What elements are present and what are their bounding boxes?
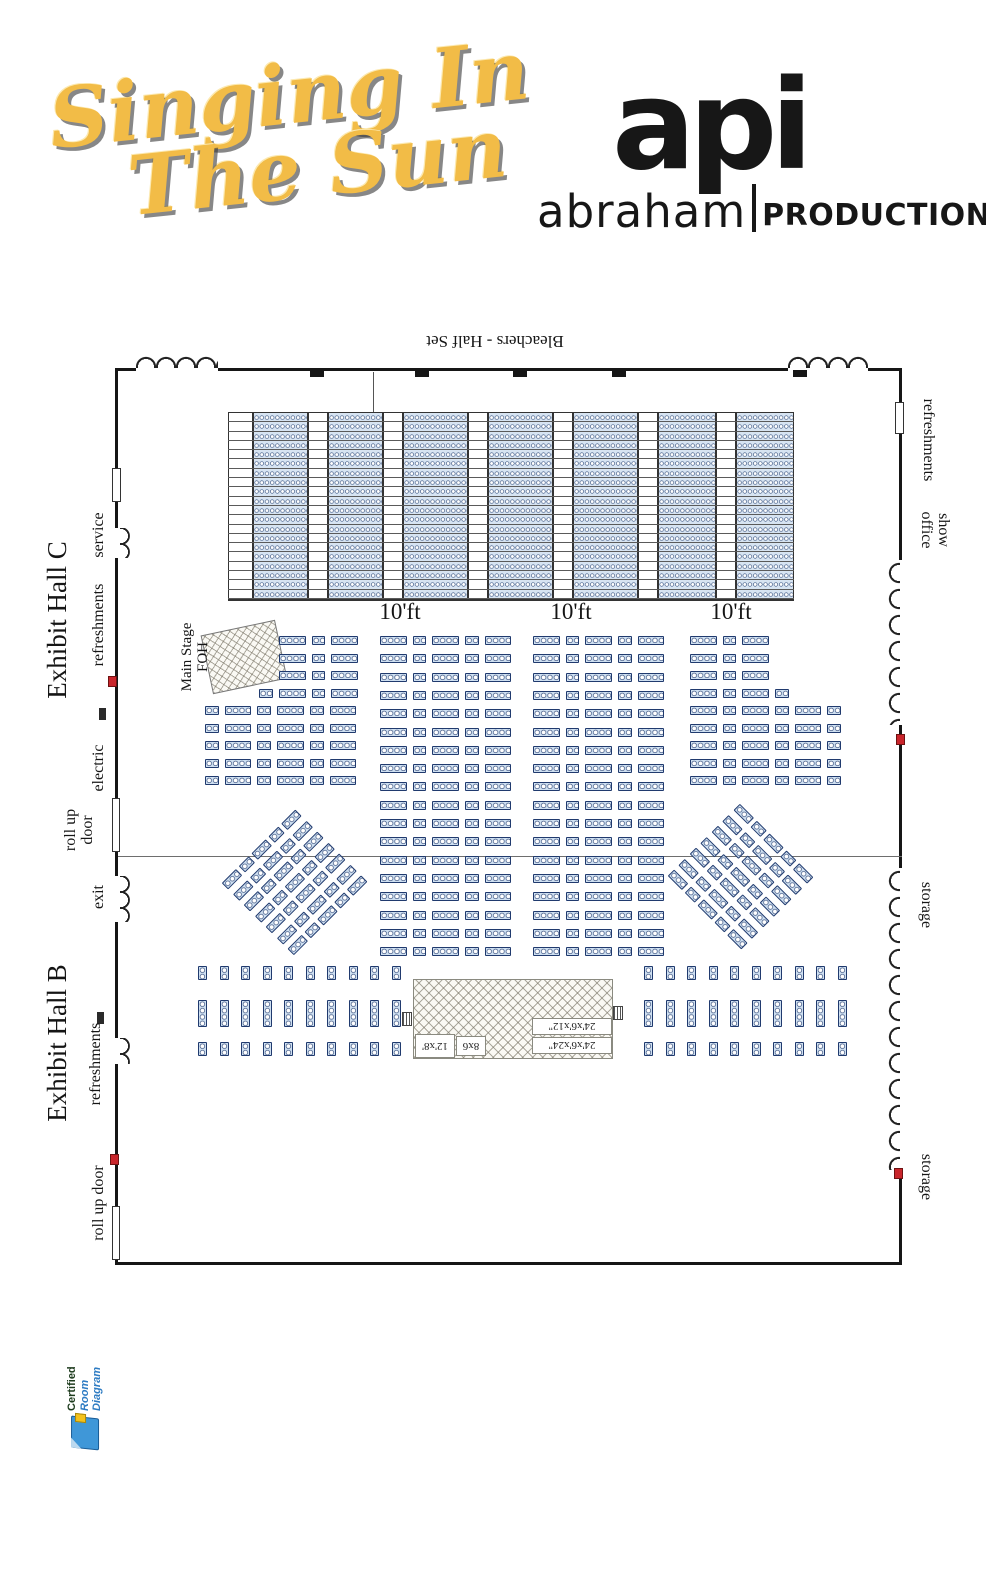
seat-cluster (330, 741, 357, 750)
bleacher-aisle (716, 459, 736, 467)
bleacher-aisle (468, 571, 488, 579)
bleacher-seats (328, 580, 383, 588)
seat-cluster (618, 782, 632, 791)
seat-cluster (465, 819, 479, 828)
seat-cluster (687, 1000, 696, 1027)
seat-cluster (709, 1042, 718, 1056)
seat-cluster (747, 883, 763, 899)
seat-cluster (795, 741, 822, 750)
seat-cluster (795, 724, 822, 733)
seat-cluster (618, 819, 632, 828)
bleacher-seats (403, 580, 468, 588)
bleacher-seats (658, 441, 716, 449)
seat-cluster (413, 929, 427, 938)
bleacher-aisle (553, 469, 573, 477)
bleacher-seats (488, 469, 553, 477)
seat-cluster (317, 905, 338, 926)
bleacher-stairs (228, 590, 253, 598)
bleacher-aisle (716, 506, 736, 514)
seat-cluster (533, 874, 560, 883)
bleacher-aisle (308, 432, 328, 440)
aisle-width-label: 10'ft (541, 599, 601, 625)
seat-cluster (775, 706, 789, 715)
seat-cluster (533, 892, 560, 901)
bleacher-seats (658, 534, 716, 542)
seat-cluster (284, 1042, 293, 1056)
bleacher-seats (328, 534, 383, 542)
seat-cluster (741, 855, 762, 876)
bleacher-seats (573, 506, 638, 514)
seat-cluster (465, 709, 479, 718)
bleacher-seats (658, 580, 716, 588)
bleacher-seats (403, 590, 468, 598)
bleacher-seats (328, 487, 383, 495)
bleacher-aisle (638, 459, 658, 467)
seat-cluster (241, 1042, 250, 1056)
seat-cluster (323, 881, 339, 897)
seat-cluster (432, 691, 459, 700)
seat-cluster (330, 706, 357, 715)
event-room-diagram-page: Singing In The Sun api abraham PRODUCTIO… (0, 0, 986, 1572)
seat-cluster (827, 776, 841, 785)
bleacher-seats (658, 487, 716, 495)
bleacher-aisle (553, 506, 573, 514)
refreshments-label: refreshments (919, 388, 937, 492)
seat-cluster (225, 724, 252, 733)
bleacher-seats (658, 506, 716, 514)
seat-cluster (392, 1042, 401, 1056)
seat-cluster (690, 759, 717, 768)
bleacher-aisle (383, 506, 403, 514)
seat-cluster (618, 911, 632, 920)
seat-cluster (638, 892, 665, 901)
seat-cluster (775, 776, 789, 785)
seat-cluster (380, 746, 407, 755)
bleacher-aisle (468, 506, 488, 514)
seat-cluster (413, 874, 427, 883)
seat-cluster (566, 819, 580, 828)
seat-cluster (225, 759, 252, 768)
bleacher-row (228, 450, 794, 459)
seat-cluster (310, 724, 324, 733)
bleacher-row (228, 487, 794, 496)
seat-cluster (638, 636, 665, 645)
show-office-label-line2: office (917, 511, 934, 548)
bleacher-aisle (716, 515, 736, 523)
bleacher-seats (253, 562, 308, 570)
rollup-door-label: roll up door (90, 1151, 108, 1255)
seat-cluster (742, 776, 769, 785)
seat-cluster (198, 966, 207, 980)
bleacher-seats (403, 506, 468, 514)
bleacher-aisle (383, 534, 403, 542)
bleacher-seats (403, 571, 468, 579)
bleacher-stairs (228, 497, 253, 505)
bleacher-stairs (228, 478, 253, 486)
seat-cluster (465, 801, 479, 810)
seat-cluster (775, 724, 789, 733)
bleacher-row (228, 506, 794, 515)
bleacher-row (228, 552, 794, 561)
seat-cluster (279, 671, 306, 680)
bleacher-seats (328, 515, 383, 523)
seat-cluster (432, 654, 459, 663)
seat-cluster (795, 966, 804, 980)
seat-cluster (533, 746, 560, 755)
seat-cluster (533, 947, 560, 956)
seat-cluster (730, 866, 751, 887)
seat-cluster (795, 1000, 804, 1027)
seat-cluster (485, 929, 512, 938)
seat-cluster (432, 673, 459, 682)
seat-cluster (566, 929, 580, 938)
seat-cluster (736, 894, 752, 910)
seat-cluster (413, 782, 427, 791)
seat-cluster (816, 1000, 825, 1027)
bleacher-aisle (553, 543, 573, 551)
seat-cluster (327, 966, 336, 980)
seat-cluster (566, 728, 580, 737)
bleacher-aisle (638, 478, 658, 486)
seat-cluster (413, 654, 427, 663)
bleacher-seats (573, 469, 638, 477)
seat-cluster (485, 837, 512, 846)
bleacher-aisle (308, 515, 328, 523)
seat-cluster (618, 673, 632, 682)
bleacher-aisle (308, 450, 328, 458)
seat-cluster (566, 691, 580, 700)
bleacher-seats (488, 487, 553, 495)
bleacher-aisle (716, 552, 736, 560)
seat-cluster (257, 706, 271, 715)
seat-cluster (413, 947, 427, 956)
seat-cluster (380, 837, 407, 846)
bleacher-aisle (716, 590, 736, 598)
seat-cluster (241, 966, 250, 980)
bleacher-aisle (553, 534, 573, 542)
bleacher-seats (488, 552, 553, 560)
seat-cluster (312, 636, 326, 645)
seat-cluster (712, 826, 733, 847)
bleacher-stairs (228, 515, 253, 523)
seat-cluster (685, 887, 701, 903)
bleacher-stairs (228, 506, 253, 514)
seat-cluster (638, 911, 665, 920)
seat-cluster (723, 759, 737, 768)
seat-cluster (279, 636, 306, 645)
bleacher-seats (403, 534, 468, 542)
bleacher-seats (328, 413, 383, 421)
rollup-door-label-line1: roll up (63, 809, 80, 851)
seat-cluster (263, 966, 272, 980)
seat-cluster (723, 654, 737, 663)
bleacher-seats (488, 571, 553, 579)
seat-cluster (331, 689, 358, 698)
seat-cluster (585, 929, 612, 938)
seat-cluster (566, 947, 580, 956)
bleacher-aisle (383, 413, 403, 421)
seat-cluster (465, 673, 479, 682)
bleacher-seats (403, 487, 468, 495)
seat-cluster (838, 1042, 847, 1056)
seat-cluster (742, 636, 769, 645)
seating-block (690, 636, 843, 785)
bleacher-seats (403, 497, 468, 505)
bleacher-seats (736, 469, 794, 477)
foh-label-line1: Main Stage (180, 623, 196, 692)
seat-cluster (742, 741, 769, 750)
bleacher-row (228, 562, 794, 571)
seat-cluster (272, 889, 288, 905)
bleacher-aisle (468, 487, 488, 495)
seat-cluster (380, 892, 407, 901)
seat-cluster (566, 636, 580, 645)
bleacher-seats (573, 515, 638, 523)
seat-cluster (349, 966, 358, 980)
seat-cluster (533, 673, 560, 682)
seat-cluster (312, 671, 326, 680)
seat-cluster (715, 916, 731, 932)
bleacher-aisle (468, 469, 488, 477)
bleacher-aisle (553, 478, 573, 486)
seat-cluster (585, 636, 612, 645)
seat-cluster (465, 746, 479, 755)
bleacher-aisle (468, 450, 488, 458)
bleacher-aisle (468, 534, 488, 542)
seat-cluster (638, 746, 665, 755)
bleacher-seats (328, 562, 383, 570)
seat-cluster (277, 706, 304, 715)
seat-cluster (566, 837, 580, 846)
bleacher-seats (253, 552, 308, 560)
bleacher-stairs (228, 525, 253, 533)
seat-cluster (585, 874, 612, 883)
bleacher-aisle (716, 580, 736, 588)
seat-cluster (709, 966, 718, 980)
seat-cluster (723, 724, 737, 733)
seat-cluster (327, 1042, 336, 1056)
seat-cluster (380, 673, 407, 682)
bleacher-seats (328, 590, 383, 598)
seat-cluster (370, 1000, 379, 1027)
seat-cluster (729, 843, 745, 859)
seat-cluster (465, 654, 479, 663)
bleacher-aisle (308, 487, 328, 495)
bleacher-seats (488, 534, 553, 542)
bleacher-seats (328, 497, 383, 505)
seat-cluster (795, 759, 822, 768)
seat-cluster (432, 728, 459, 737)
seat-cluster (413, 709, 427, 718)
seat-cluster (726, 905, 742, 921)
seat-cluster (330, 759, 357, 768)
seat-cluster (638, 728, 665, 737)
bleacher-row (228, 469, 794, 478)
seat-cluster (690, 776, 717, 785)
seat-cluster (485, 728, 512, 737)
bleacher-seats (736, 422, 794, 430)
seat-cluster (585, 892, 612, 901)
seating-block (205, 636, 358, 785)
bleacher-row (228, 478, 794, 487)
seat-cluster (758, 872, 774, 888)
bleacher-stairs (228, 580, 253, 588)
bleacher-seats (736, 580, 794, 588)
seat-cluster (413, 764, 427, 773)
bleacher-seats (253, 459, 308, 467)
bleacher-aisle (638, 422, 658, 430)
seat-cluster (380, 819, 407, 828)
seat-cluster (277, 776, 304, 785)
seat-cluster (701, 837, 722, 858)
seat-cluster (763, 833, 784, 854)
bleacher-seats (253, 571, 308, 579)
seat-cluster (284, 966, 293, 980)
seat-cluster (723, 776, 737, 785)
seat-cluster (827, 706, 841, 715)
seat-cluster (690, 689, 717, 698)
seat-cluster (241, 1000, 250, 1027)
bleacher-aisle (638, 413, 658, 421)
refreshments-label: refreshments (90, 573, 108, 677)
bleacher-seats (328, 432, 383, 440)
bleacher-stairs (228, 450, 253, 458)
bleacher-aisle (383, 497, 403, 505)
seat-cluster (380, 947, 407, 956)
bleacher-aisle (716, 441, 736, 449)
bleacher-aisle (383, 515, 403, 523)
refreshments-label: refreshments (87, 1012, 105, 1116)
bleacher-stairs (228, 413, 253, 421)
bleacher-aisle (468, 562, 488, 570)
seat-cluster (413, 691, 427, 700)
bleacher-stairs (228, 459, 253, 467)
seat-cluster (330, 724, 357, 733)
seat-cluster (618, 746, 632, 755)
bleacher-seats (736, 478, 794, 486)
seat-cluster (413, 728, 427, 737)
exit-label: exit (90, 880, 108, 914)
bleacher-aisle (468, 515, 488, 523)
bleacher-seats (573, 422, 638, 430)
seat-cluster (638, 929, 665, 938)
bleacher-seats (658, 571, 716, 579)
seat-cluster (331, 671, 358, 680)
seat-cluster (585, 764, 612, 773)
seat-cluster (638, 856, 665, 865)
bleacher-seats (658, 432, 716, 440)
seat-cluster (250, 867, 266, 883)
seat-cluster (533, 837, 560, 846)
bleacher-stairs (228, 562, 253, 570)
seat-cluster (432, 856, 459, 865)
bleacher-aisle (638, 534, 658, 542)
bleacher-seats (253, 534, 308, 542)
seat-cluster (533, 764, 560, 773)
rollup-door-label: roll up door (62, 798, 98, 862)
seat-cluster (432, 837, 459, 846)
seat-cluster (566, 764, 580, 773)
bleacher-seats (573, 497, 638, 505)
bleacher-seats (658, 413, 716, 421)
bleacher-seats (488, 441, 553, 449)
bleacher-seats (573, 580, 638, 588)
bleacher-aisle (383, 459, 403, 467)
seat-cluster (261, 878, 277, 894)
seat-cluster (566, 782, 580, 791)
seat-cluster (370, 1042, 379, 1056)
bleacher-seats (488, 432, 553, 440)
bleacher-aisle (553, 552, 573, 560)
seat-cluster (742, 706, 769, 715)
bleachers-grid (228, 412, 794, 601)
seat-cluster (566, 874, 580, 883)
seat-cluster (349, 1000, 358, 1027)
seat-cluster (485, 691, 512, 700)
seat-cluster (618, 947, 632, 956)
seat-cluster (413, 856, 427, 865)
seat-cluster (392, 1000, 401, 1027)
bleacher-seats (403, 441, 468, 449)
bleacher-seats (253, 590, 308, 598)
bleacher-row (228, 422, 794, 431)
bleacher-seats (253, 487, 308, 495)
seat-cluster (734, 804, 755, 825)
seat-cluster (198, 1042, 207, 1056)
seat-cluster (690, 636, 717, 645)
seat-cluster (585, 709, 612, 718)
bleacher-seats (658, 525, 716, 533)
seat-cluster (638, 709, 665, 718)
seat-cluster (305, 922, 321, 938)
seat-cluster (740, 832, 756, 848)
seat-cluster (380, 874, 407, 883)
seat-cluster (485, 673, 512, 682)
bleacher-stairs (228, 543, 253, 551)
bleacher-seats (658, 590, 716, 598)
seat-cluster (277, 724, 304, 733)
seat-cluster (380, 691, 407, 700)
seat-cluster (585, 691, 612, 700)
bleacher-seats (403, 413, 468, 421)
bleacher-aisle (553, 459, 573, 467)
bleacher-aisle (638, 590, 658, 598)
bleacher-seats (328, 571, 383, 579)
bleacher-seats (488, 459, 553, 467)
seat-cluster (432, 929, 459, 938)
seat-cluster (752, 966, 761, 980)
bleacher-aisle (383, 580, 403, 588)
rollup-door-label-line2: door (80, 815, 97, 844)
bleacher-seats (736, 543, 794, 551)
bleacher-aisle (716, 525, 736, 533)
seat-cluster (795, 776, 822, 785)
bleacher-aisle (468, 413, 488, 421)
bleacher-seats (328, 506, 383, 514)
bleacher-aisle (716, 450, 736, 458)
bleacher-aisle (308, 534, 328, 542)
bleacher-seats (328, 450, 383, 458)
seating-block (380, 636, 503, 956)
bleacher-aisle (468, 497, 488, 505)
bleacher-aisle (308, 562, 328, 570)
seat-cluster (205, 706, 219, 715)
aisle-width-label: 10'ft (701, 599, 761, 625)
seat-cluster (666, 1000, 675, 1027)
seat-cluster (280, 838, 296, 854)
seat-cluster (485, 709, 512, 718)
seat-cluster (793, 863, 814, 884)
